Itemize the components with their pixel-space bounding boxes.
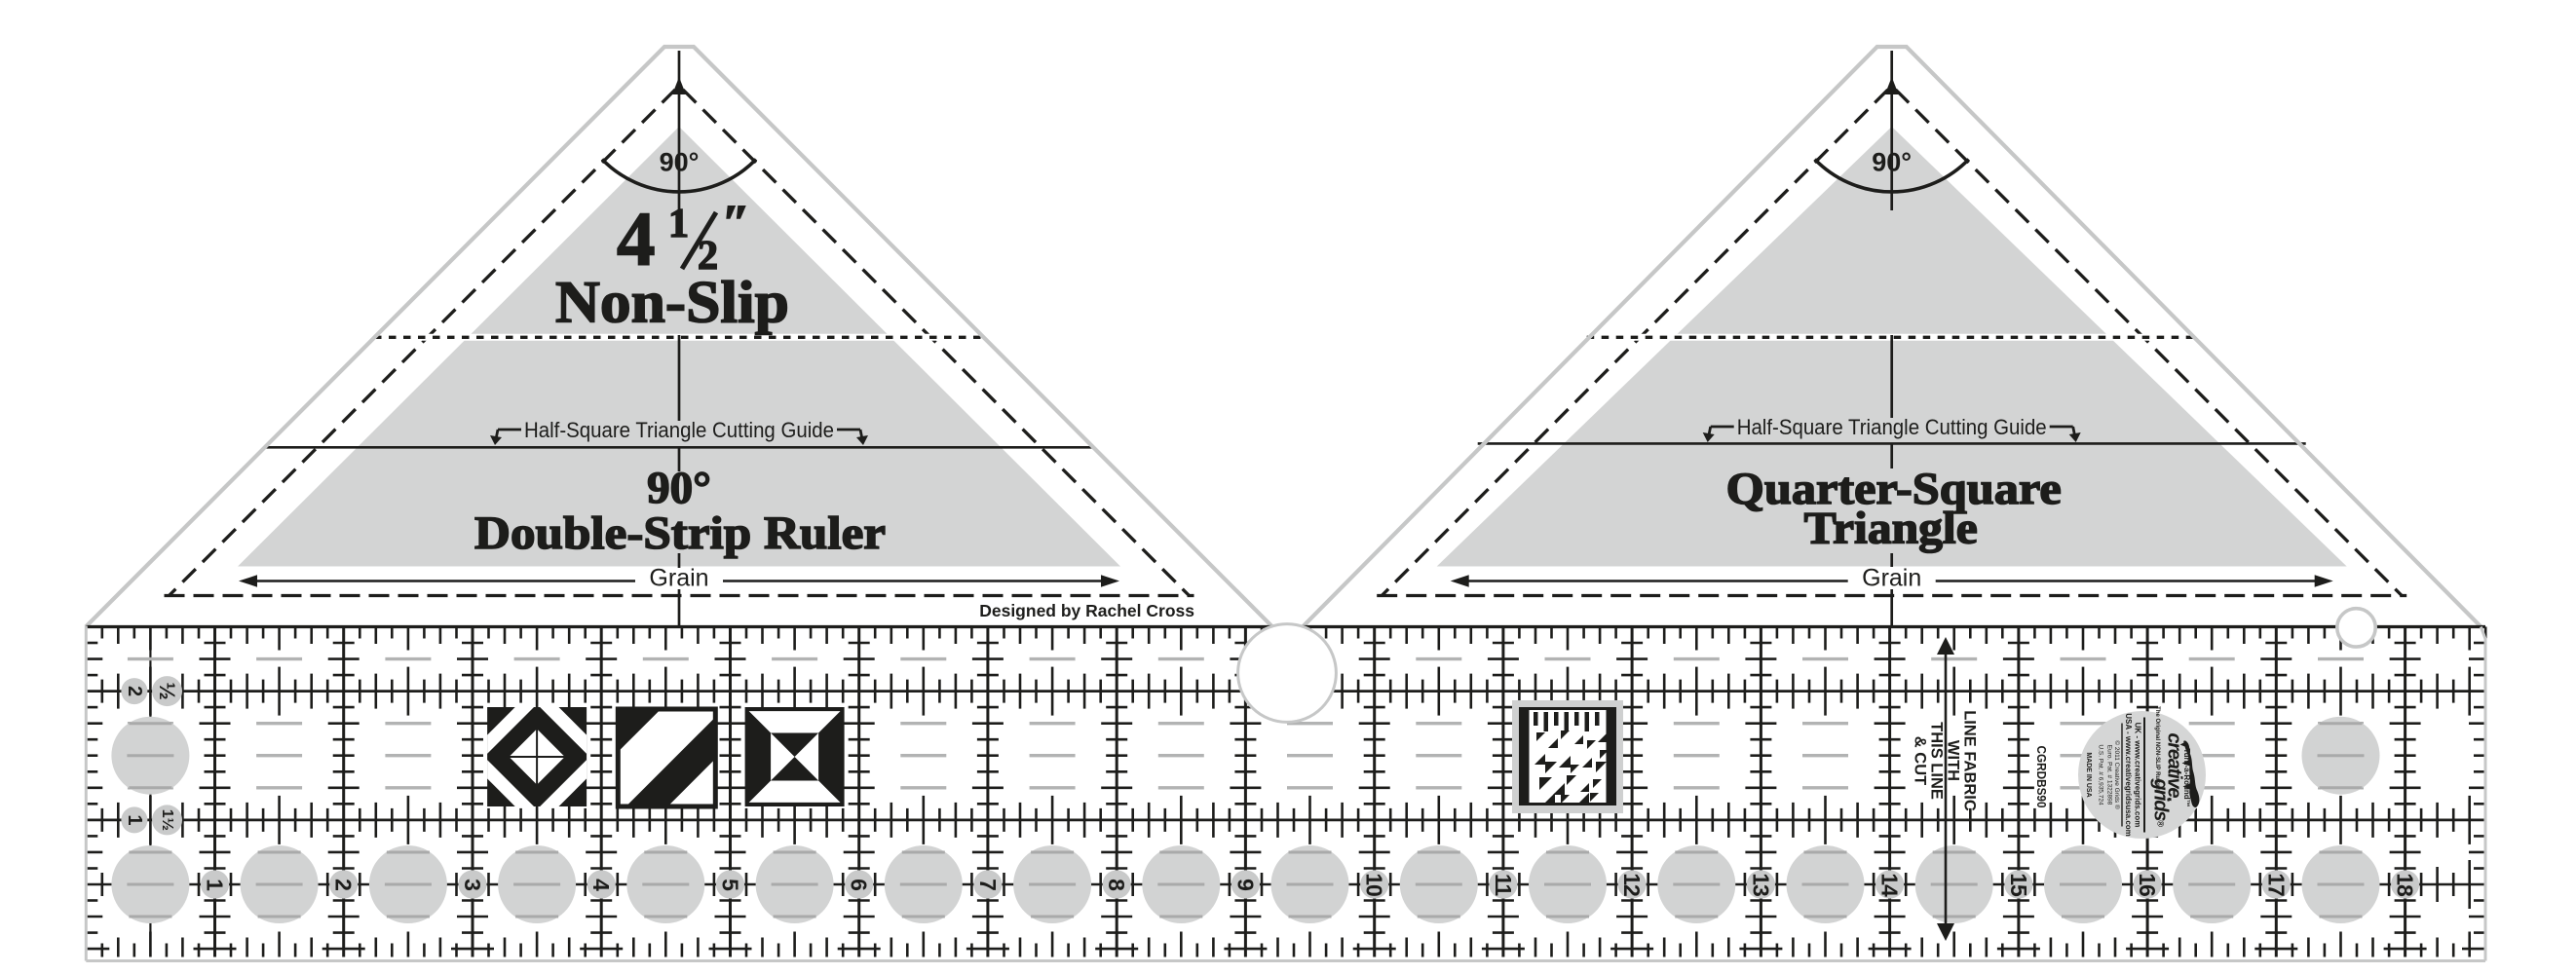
svg-text:9: 9: [1232, 879, 1258, 890]
svg-text:Triangle: Triangle: [1804, 504, 1978, 554]
svg-text:″: ″: [722, 196, 750, 251]
svg-text:CGRDBS90: CGRDBS90: [2034, 746, 2049, 808]
svg-text:LINE FABRIC: LINE FABRIC: [1961, 710, 1979, 811]
svg-text:THIS LINE: THIS LINE: [1928, 722, 1946, 800]
svg-text:2: 2: [124, 686, 145, 696]
svg-text:grids®: grids®: [2150, 777, 2172, 827]
svg-text:& CUT: & CUT: [1912, 736, 1929, 785]
svg-text:2: 2: [331, 879, 357, 890]
svg-text:10: 10: [1362, 873, 1387, 896]
svg-text:11: 11: [1491, 874, 1516, 897]
svg-text:1: 1: [203, 879, 228, 891]
svg-text:Non-Slip: Non-Slip: [555, 271, 789, 336]
svg-text:Designed by Rachel Cross: Designed by Rachel Cross: [979, 601, 1194, 620]
svg-text:5: 5: [718, 879, 743, 891]
svg-text:14: 14: [1877, 873, 1903, 897]
svg-text:WITH: WITH: [1945, 740, 1962, 781]
svg-text:8: 8: [1104, 879, 1129, 891]
svg-text:½: ½: [155, 682, 179, 699]
svg-text:Grain: Grain: [649, 565, 708, 592]
svg-text:Grain: Grain: [1862, 565, 1921, 592]
svg-text:12: 12: [1619, 873, 1645, 896]
svg-text:UK - www.creativegrids.com: UK - www.creativegrids.com: [2134, 723, 2142, 828]
svg-text:MADE IN USA: MADE IN USA: [2085, 752, 2092, 797]
svg-text:U.S. Pat. # 6,935,724: U.S. Pat. # 6,935,724: [2098, 744, 2104, 805]
svg-text:16: 16: [2135, 873, 2160, 896]
svg-text:90°: 90°: [647, 463, 711, 513]
svg-text:Euro. Pat. # 1322898: Euro. Pat. # 1322898: [2106, 745, 2113, 805]
svg-text:Half-Square Triangle Cutting G: Half-Square Triangle Cutting Guide: [1737, 415, 2047, 439]
svg-text:Half-Square Triangle Cutting G: Half-Square Triangle Cutting Guide: [524, 418, 834, 442]
svg-text:1: 1: [668, 202, 689, 246]
svg-text:USA - www.creativegridsusa.com: USA - www.creativegridsusa.com: [2124, 713, 2133, 837]
svg-text:15: 15: [2006, 873, 2031, 897]
svg-text:1: 1: [124, 814, 145, 825]
svg-text:4: 4: [588, 879, 614, 891]
svg-text:1½: 1½: [159, 809, 175, 831]
svg-text:18: 18: [2393, 873, 2418, 897]
svg-text:7: 7: [975, 879, 1001, 890]
svg-text:6: 6: [847, 879, 872, 890]
svg-text:17: 17: [2263, 873, 2289, 896]
svg-text:© 2011 Creative Grids ®: © 2011 Creative Grids ®: [2113, 740, 2121, 809]
svg-text:Double-Strip Ruler: Double-Strip Ruler: [474, 507, 886, 559]
svg-text:13: 13: [1748, 873, 1773, 896]
svg-text:3: 3: [460, 879, 485, 890]
